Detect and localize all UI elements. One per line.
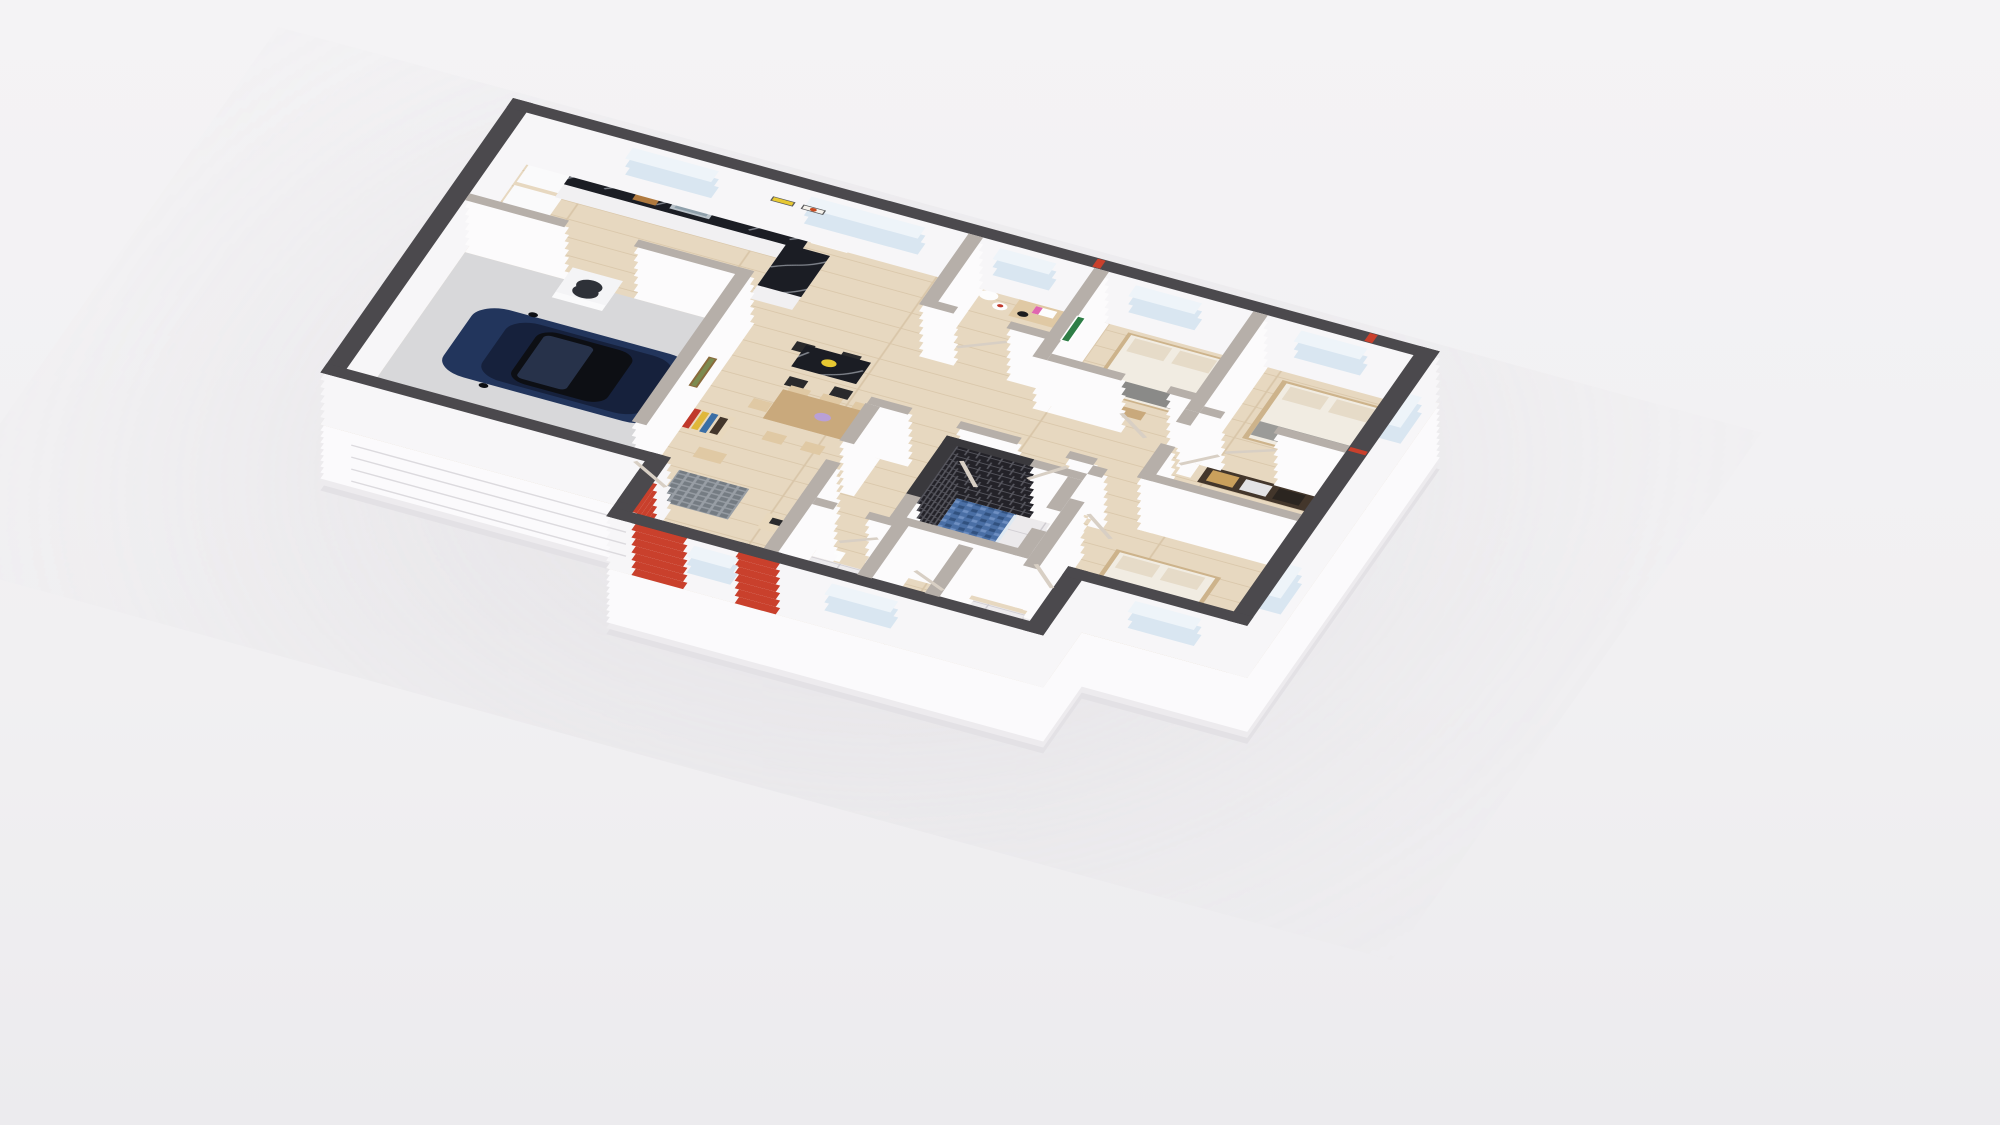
- floorplan-page: 3D isometric cutaway floor plan render o…: [0, 0, 2000, 1125]
- floorplan-3d-render: [0, 0, 2000, 1125]
